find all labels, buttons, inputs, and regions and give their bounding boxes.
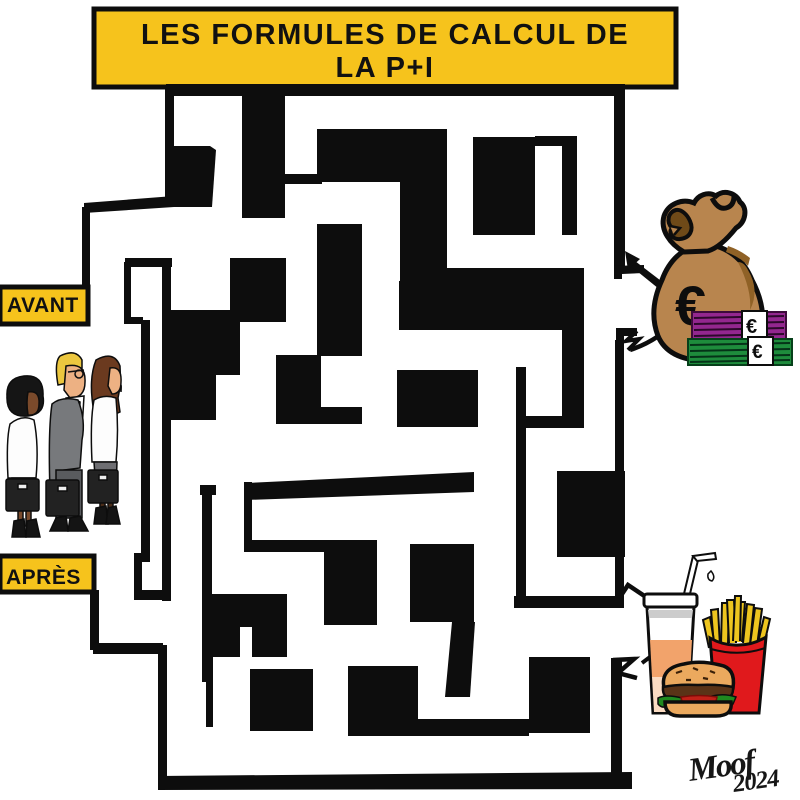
svg-text:AVANT: AVANT xyxy=(7,294,79,317)
svg-text:LA P+I: LA P+I xyxy=(336,52,435,84)
svg-text:€: € xyxy=(752,342,763,363)
svg-text:APRÈS: APRÈS xyxy=(6,566,81,589)
svg-text:€: € xyxy=(746,316,757,338)
svg-text:LES FORMULES DE CALCUL DE: LES FORMULES DE CALCUL DE xyxy=(141,19,629,51)
